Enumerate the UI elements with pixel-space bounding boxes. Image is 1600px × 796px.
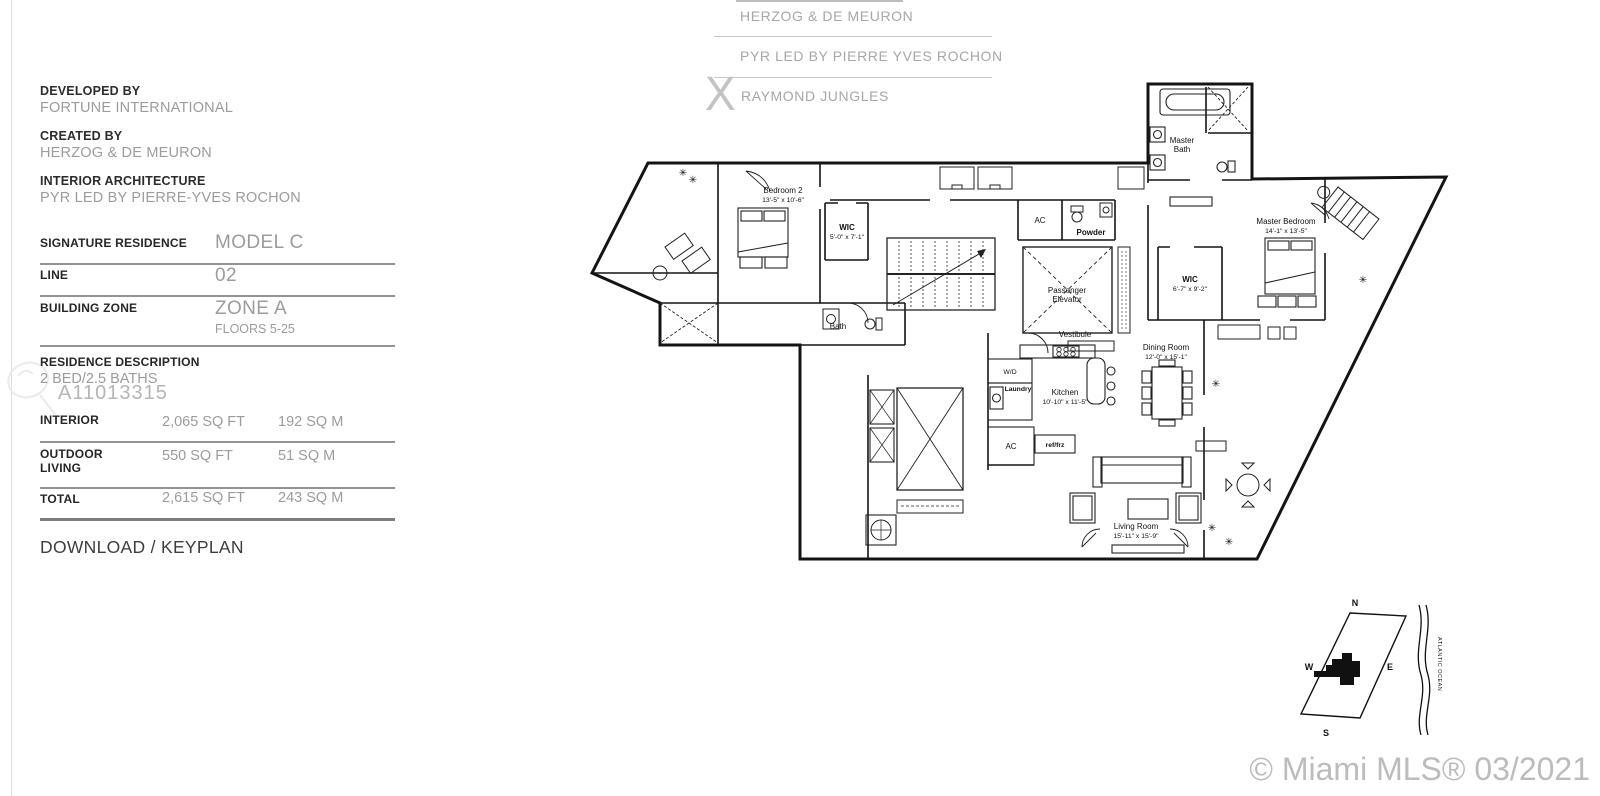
- interior-area-label: INTERIOR: [40, 413, 99, 427]
- mls-copyright: © Miami MLS® 03/2021: [1249, 751, 1590, 788]
- room-label: Bedroom 2: [763, 186, 803, 195]
- svg-text:✳: ✳: [1225, 537, 1233, 548]
- svg-text:✳: ✳: [689, 175, 697, 186]
- room-dims: 13'-5" x 10'-6": [762, 197, 804, 204]
- total-area-label: TOTAL: [40, 492, 80, 506]
- keyplan-compass: N S E W ATLANTIC OCEAN: [1268, 575, 1458, 747]
- room-dims: 15'-11" x 15'-9": [1113, 533, 1159, 540]
- interior-sqft: 2,065 SQ FT: [162, 414, 245, 430]
- created-by-label: CREATED BY: [40, 129, 122, 143]
- credit-architect: HERZOG & DE MEURON: [740, 8, 913, 24]
- room-dims: 6'-7" x 9'-2": [1173, 286, 1208, 293]
- room-label: Passenger: [1048, 286, 1087, 295]
- divider: [40, 518, 395, 521]
- zone-value: ZONE A: [215, 298, 287, 320]
- room-label: Bath: [1174, 145, 1190, 154]
- credit-interior: PYR LED BY PIERRE YVES ROCHON: [740, 48, 1003, 64]
- keyplan-unit-footprint: [1314, 653, 1360, 685]
- room-label: WIC: [1182, 275, 1198, 284]
- room-dims: 12'-0" x 15'-1": [1145, 354, 1187, 361]
- developed-by-value: FORTUNE INTERNATIONAL: [40, 100, 233, 116]
- room-label: AC: [1034, 216, 1045, 225]
- room-label: Living Room: [1114, 522, 1159, 531]
- download-link[interactable]: DOWNLOAD: [40, 537, 145, 557]
- room-label: Vestibule: [1059, 330, 1092, 339]
- ocean-label: ATLANTIC OCEAN: [1436, 637, 1442, 691]
- dining-table-icon: [1142, 360, 1192, 426]
- room-label: Powder: [1077, 228, 1106, 237]
- room-label: Elevator: [1052, 295, 1082, 304]
- room-labels: Bedroom 2 13'-5" x 10'-6" WIC 5'-0" x 7'…: [762, 136, 1316, 540]
- master-bath-fixtures: [1150, 89, 1235, 172]
- total-sqft: 2,615 SQ FT: [162, 490, 245, 506]
- download-keyplan-links: DOWNLOAD / KEYPLAN: [40, 537, 244, 558]
- divider: [40, 345, 395, 347]
- developed-by-label: DEVELOPED BY: [40, 84, 140, 98]
- outdoor-living-label-2: LIVING: [40, 461, 81, 475]
- floorplan-drawing: ✳ ✳ ✳ ✳ ✳ ✳ Bedroom 2 13'-5" x 10'-6" WI…: [570, 75, 1450, 570]
- interior-sqm: 192 SQ M: [278, 414, 343, 430]
- model-value: MODEL C: [215, 232, 304, 254]
- room-label: Laundry: [1005, 386, 1032, 393]
- interior-architecture-label: INTERIOR ARCHITECTURE: [40, 174, 206, 188]
- room-label: AC: [1005, 442, 1016, 451]
- divider: [40, 487, 395, 489]
- top-partial-rule: [736, 0, 903, 2]
- svg-text:✳: ✳: [679, 168, 687, 179]
- residence-description-label: RESIDENCE DESCRIPTION: [40, 355, 200, 369]
- outdoor-sqft: 550 SQ FT: [162, 448, 233, 464]
- total-sqm: 243 SQ M: [278, 490, 343, 506]
- signature-residence-label: SIGNATURE RESIDENCE: [40, 236, 187, 250]
- line-value: 02: [215, 265, 237, 287]
- line-label: LINE: [40, 268, 68, 282]
- compass-south: S: [1323, 728, 1329, 738]
- interior-architecture-value: PYR LED BY PIERRE-YVES ROCHON: [40, 190, 301, 206]
- floors-value: FLOORS 5-25: [215, 322, 295, 336]
- compass-north: N: [1352, 598, 1359, 608]
- powder-room-fixtures: [1071, 203, 1112, 222]
- download-separator: /: [145, 537, 161, 557]
- created-by-value: HERZOG & DE MEURON: [40, 145, 212, 161]
- room-label: W/D: [1003, 369, 1016, 376]
- page: { "top_credits": { "lines": ["HERZOG & D…: [0, 0, 1600, 796]
- room-label: Kitchen: [1052, 388, 1079, 397]
- room-label: WIC: [839, 223, 855, 232]
- compass-west: W: [1305, 662, 1314, 672]
- svg-text:✳: ✳: [1208, 523, 1216, 534]
- divider: [714, 36, 992, 37]
- closet-cabinets: [940, 167, 1144, 189]
- room-label: Master: [1170, 136, 1195, 145]
- interior-walls: [592, 87, 1325, 559]
- room-label: Master Bedroom: [1256, 217, 1315, 226]
- dashed-partitions: [660, 87, 1248, 343]
- svg-text:✳: ✳: [1359, 275, 1367, 286]
- divider: [40, 441, 395, 443]
- outdoor-living-label: OUTDOOR: [40, 447, 103, 461]
- service-core-icons: [866, 388, 963, 545]
- room-dims: 5'-0" x 7'-1": [830, 234, 865, 241]
- building-zone-label: BUILDING ZONE: [40, 301, 137, 315]
- svg-text:✳: ✳: [1212, 379, 1220, 390]
- mls-id-watermark: A11013315: [58, 382, 168, 405]
- stairs-icon: [887, 238, 995, 310]
- keyplan-link[interactable]: KEYPLAN: [161, 537, 244, 557]
- outdoor-sqm: 51 SQ M: [278, 448, 335, 464]
- compass-east: E: [1387, 662, 1393, 672]
- room-label: Dining Room: [1143, 343, 1190, 352]
- room-label: ref/frz: [1046, 442, 1065, 449]
- room-dims: 14'-1" x 13'-5": [1265, 228, 1307, 235]
- laundry-fixtures: [988, 359, 1075, 465]
- room-label: Bath: [830, 322, 846, 331]
- room-dims: 10'-10" x 11'-5": [1042, 399, 1088, 406]
- divider: [40, 295, 395, 297]
- outer-walls: [592, 84, 1446, 559]
- shoreline-waves: [1418, 605, 1429, 735]
